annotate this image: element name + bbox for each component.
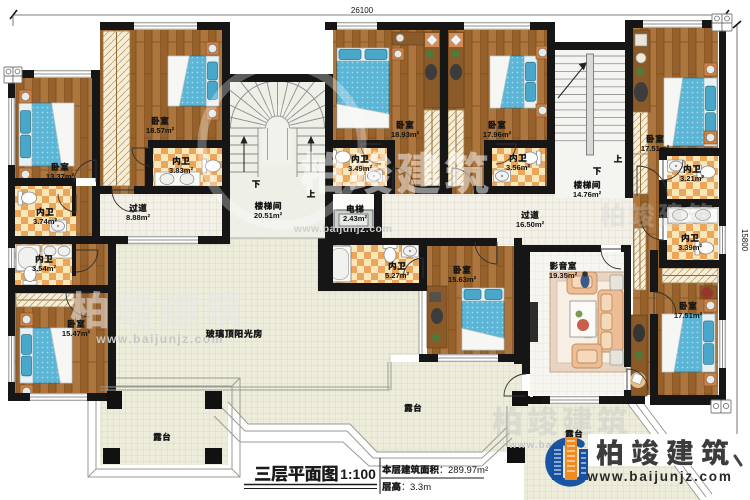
svg-text:www.baijunjz.com: www.baijunjz.com (586, 469, 732, 484)
svg-text:3.49m²: 3.49m² (348, 164, 373, 173)
svg-text:2.43m²: 2.43m² (343, 214, 368, 223)
svg-text:8.88m²: 8.88m² (126, 213, 151, 222)
svg-text:www.baijunjz.com: www.baijunjz.com (95, 332, 224, 346)
svg-text:289.97m²: 289.97m² (448, 465, 488, 476)
svg-text:17.96m²: 17.96m² (483, 130, 512, 139)
svg-text:18.93m²: 18.93m² (391, 130, 420, 139)
svg-text:3.54m²: 3.54m² (32, 264, 57, 273)
svg-text:18.57m²: 18.57m² (146, 126, 175, 135)
svg-text:www.baijunjz.com: www.baijunjz.com (293, 223, 393, 235)
svg-text:17.51m²: 17.51m² (641, 144, 670, 153)
svg-text:13.37m²: 13.37m² (46, 172, 75, 181)
svg-text:14.76m²: 14.76m² (573, 190, 602, 199)
svg-text:17.51m²: 17.51m² (674, 311, 703, 320)
svg-text:16.50m²: 16.50m² (516, 220, 545, 229)
svg-text:3.56m²: 3.56m² (506, 163, 531, 172)
svg-text:15800: 15800 (740, 229, 749, 252)
svg-text:3.3m: 3.3m (410, 482, 431, 493)
svg-text:15.47m²: 15.47m² (62, 329, 91, 338)
svg-text:3.83m²: 3.83m² (169, 166, 194, 175)
svg-text:3.74m²: 3.74m² (33, 217, 58, 226)
svg-text:3.39m²: 3.39m² (678, 243, 703, 252)
svg-text:20.51m²: 20.51m² (254, 211, 283, 220)
svg-text:26100: 26100 (351, 6, 374, 15)
svg-text:3.21m²: 3.21m² (680, 174, 705, 183)
svg-text:19.35m²: 19.35m² (549, 271, 578, 280)
svg-text:1:100: 1:100 (340, 466, 376, 482)
svg-text:15.63m²: 15.63m² (448, 275, 477, 284)
svg-text:5.27m²: 5.27m² (385, 271, 410, 280)
